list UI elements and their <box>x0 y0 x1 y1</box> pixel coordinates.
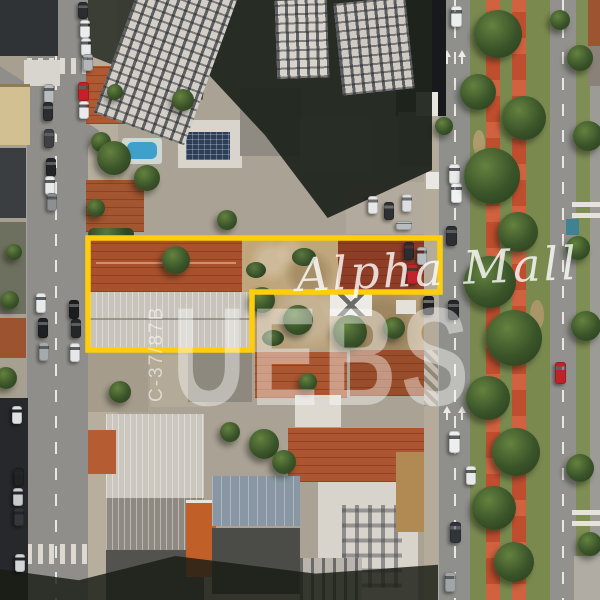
aerial-photo: Alpha Mall UEBS C-37/87B <box>0 0 600 600</box>
lot-code-label: C-37/87B <box>146 306 168 402</box>
watermark-brand: UEBS <box>172 287 473 427</box>
